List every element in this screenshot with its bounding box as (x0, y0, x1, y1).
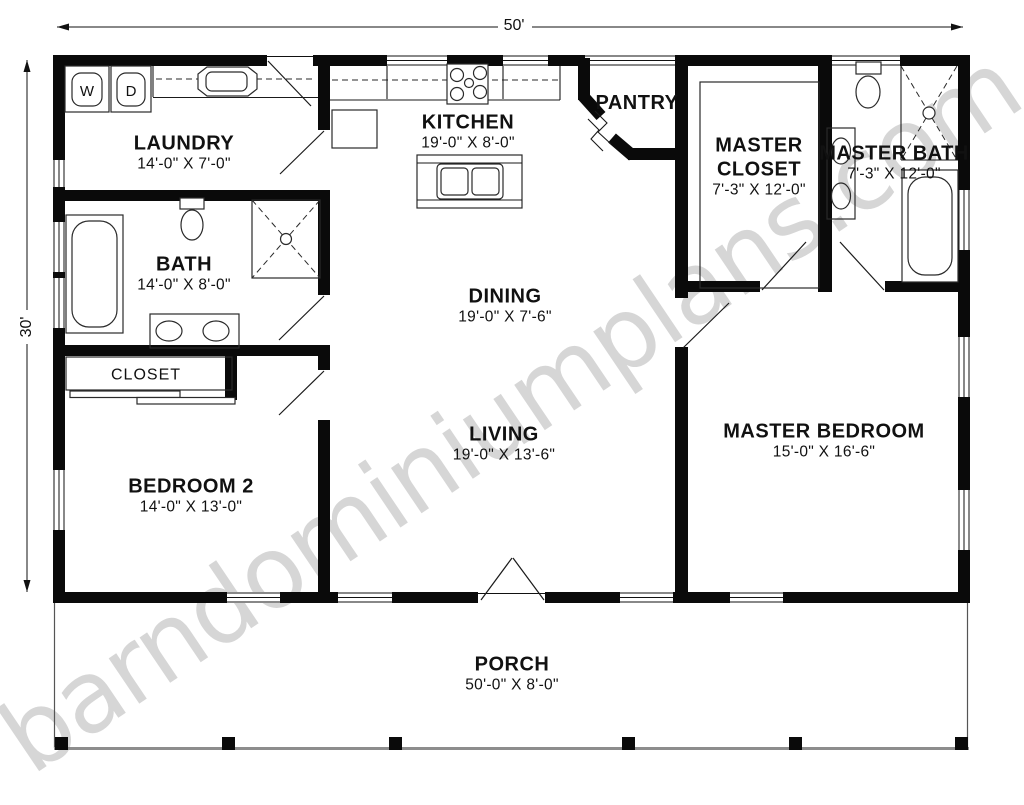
room-label-bath: BATH 14'-0" X 8'-0" (137, 253, 231, 296)
laundry-sink (198, 67, 257, 96)
floor-plan: barndominiumplans.com (0, 0, 1024, 805)
room-label-master-bath: MASTER BATH 7'-3" X 12'-0" (819, 142, 969, 185)
room-label-porch: PORCH 50'-0" X 8'-0" (465, 653, 559, 696)
kitchen-counter (330, 66, 560, 100)
room-label-dining: DINING 19'-0" X 7'-6" (458, 285, 552, 328)
master-bath-toilet (856, 62, 881, 108)
overall-height-label: 30' (18, 313, 36, 342)
room-label-kitchen: KITCHEN 19'-0" X 8'-0" (421, 111, 515, 154)
room-label-living: LIVING 19'-0" X 13'-6" (453, 423, 555, 466)
svg-text:W: W (80, 83, 95, 100)
refrigerator (332, 110, 377, 148)
bottom-wall (53, 592, 970, 603)
overall-width-label: 50' (500, 17, 529, 35)
bathtub (66, 215, 123, 333)
room-label-master-closet: MASTER CLOSET 7'-3" X 12'-0" (700, 134, 818, 201)
room-label-bedroom2: BEDROOM 2 14'-0" X 13'-0" (128, 475, 254, 518)
bath-shower (252, 200, 320, 278)
washer: W (65, 66, 109, 112)
cooktop (447, 64, 488, 104)
bath-toilet (180, 198, 204, 240)
room-label-master-bedroom: MASTER BEDROOM 15'-0" X 16'-6" (723, 420, 924, 463)
bath-vanity (150, 314, 239, 348)
room-label-closet: CLOSET (111, 365, 181, 384)
master-bathtub (902, 170, 958, 282)
room-label-pantry: PANTRY (596, 91, 679, 115)
kitchen-island (417, 155, 522, 208)
svg-text:D: D (126, 83, 137, 100)
room-label-laundry: LAUNDRY 14'-0" X 7'-0" (134, 132, 235, 175)
dryer: D (111, 66, 151, 112)
right-wall-windows (958, 190, 970, 550)
